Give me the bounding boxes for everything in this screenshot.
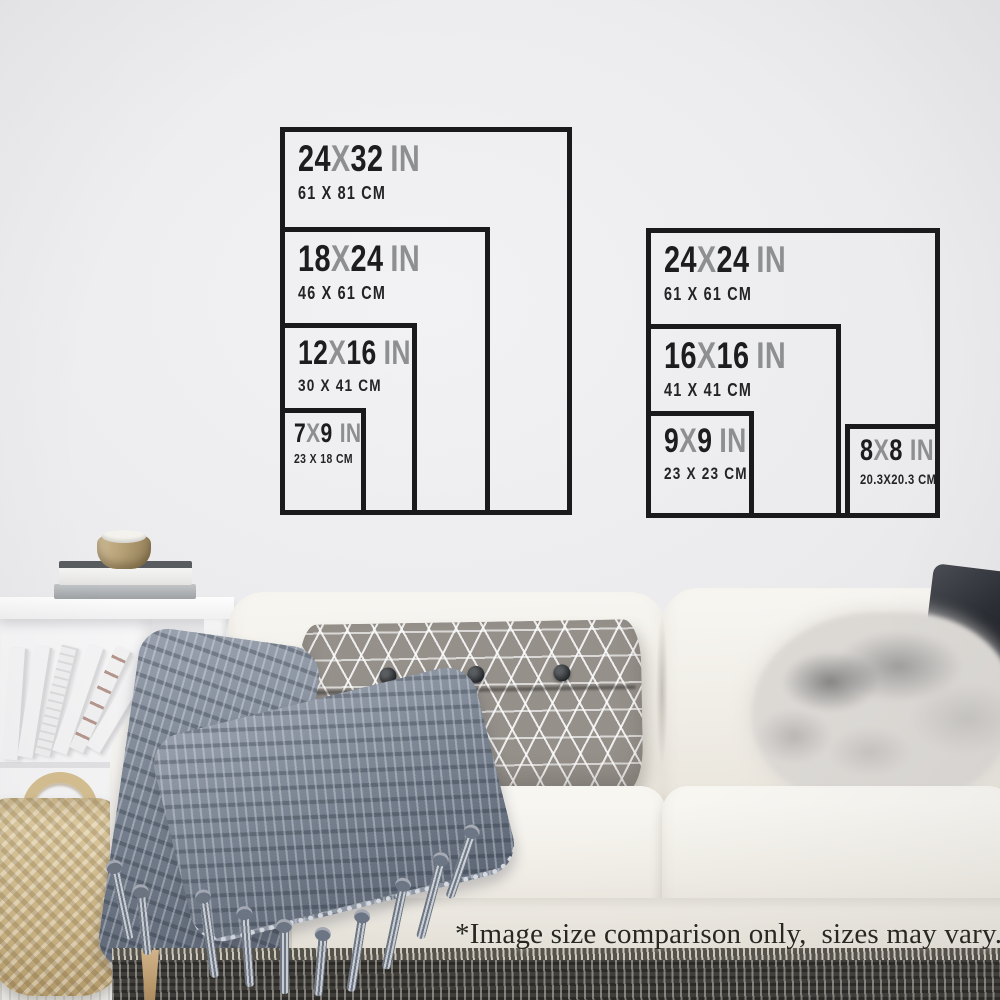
size-label: 12X16IN 30 X 41 CM bbox=[298, 336, 443, 396]
size-title: 18X24IN bbox=[298, 240, 420, 279]
size-cm: 23 X 23 CM bbox=[664, 464, 749, 484]
size-box-7x9: 7X9IN 23 X 18 CM bbox=[280, 408, 366, 515]
size-label: 18X24IN 46 X 61 CM bbox=[298, 240, 455, 304]
sofa-back-seam bbox=[654, 606, 670, 816]
size-cm: 61 X 81 CM bbox=[298, 183, 423, 204]
stacked-book-gray bbox=[54, 584, 196, 599]
size-label: 9X9IN 23 X 23 CM bbox=[664, 424, 770, 484]
size-chart-portrait: 24X32IN 61 X 81 CM 18X24IN 46 X 61 CM 12… bbox=[280, 127, 572, 515]
size-title: 24X32IN bbox=[298, 140, 420, 179]
size-title: 8X8IN bbox=[860, 435, 934, 467]
size-label: 8X8IN 20.3X20.3 CM bbox=[860, 435, 956, 487]
size-box-8x8: 8X8IN 20.3X20.3 CM bbox=[845, 424, 940, 518]
size-cm: 61 X 61 CM bbox=[664, 284, 789, 305]
size-title: 9X9IN bbox=[664, 424, 747, 460]
size-title: 7X9IN bbox=[294, 419, 362, 447]
size-title: 12X16IN bbox=[298, 336, 411, 372]
size-cm: 30 X 41 CM bbox=[298, 376, 414, 396]
size-label: 24X24IN 61 X 61 CM bbox=[664, 241, 821, 305]
size-label: 24X32IN 61 X 81 CM bbox=[298, 140, 455, 204]
size-chart-square: 24X24IN 61 X 61 CM 16X16IN 41 X 41 CM 9X… bbox=[646, 228, 940, 518]
size-box-9x9: 9X9IN 23 X 23 CM bbox=[646, 411, 754, 518]
fur-pillow bbox=[752, 612, 1000, 806]
disclaimer-text: *Image size comparison only, sizes may v… bbox=[455, 918, 995, 951]
size-cm: 23 X 18 CM bbox=[294, 451, 363, 466]
size-cm: 46 X 61 CM bbox=[298, 283, 423, 304]
throw-tassel bbox=[280, 928, 289, 994]
candle-wax bbox=[102, 530, 146, 543]
size-cm: 41 X 41 CM bbox=[664, 380, 789, 401]
size-cm: 20.3X20.3 CM bbox=[860, 471, 936, 487]
pillow-button bbox=[553, 664, 570, 681]
size-label: 16X16IN 41 X 41 CM bbox=[664, 337, 821, 401]
product-photo-size-chart: 24X32IN 61 X 81 CM 18X24IN 46 X 61 CM 12… bbox=[0, 0, 1000, 1000]
console-shelf-top bbox=[0, 597, 234, 619]
size-title: 24X24IN bbox=[664, 241, 786, 280]
size-title: 16X16IN bbox=[664, 337, 786, 376]
size-label: 7X9IN 23 X 18 CM bbox=[294, 419, 381, 466]
